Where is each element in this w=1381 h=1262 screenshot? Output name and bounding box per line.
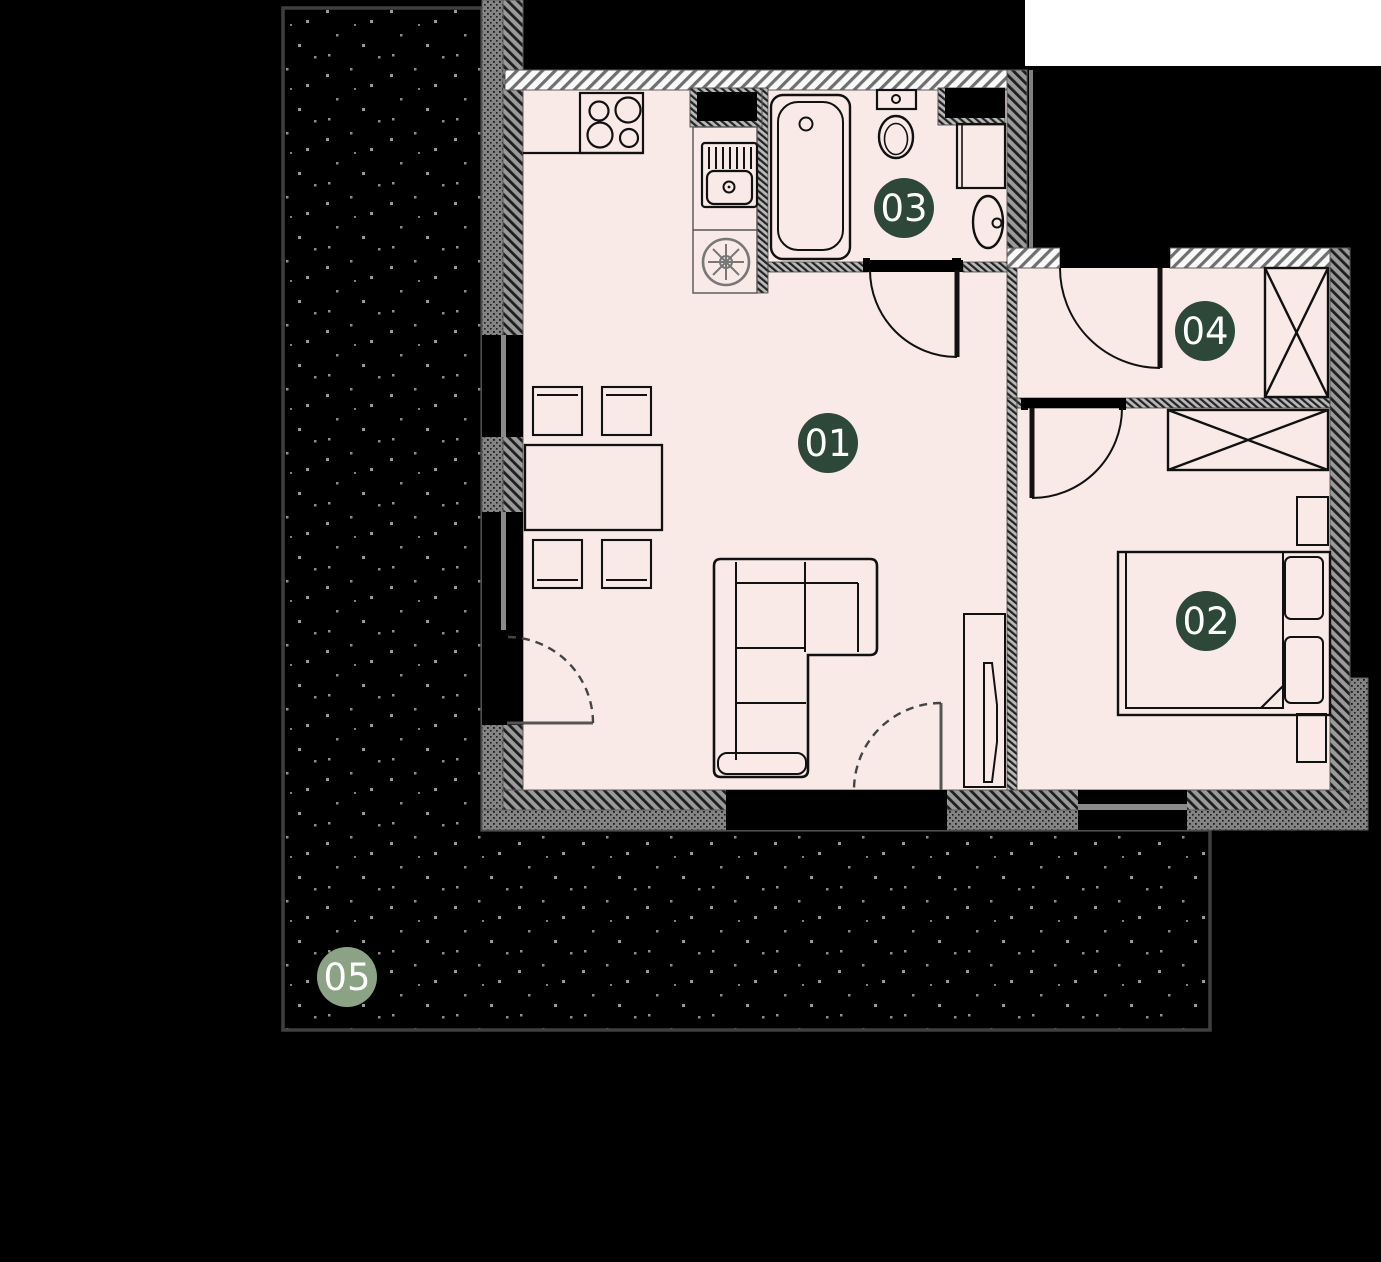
room-badge-label: 02 — [1182, 600, 1229, 643]
room-badge-label: 05 — [323, 956, 370, 999]
floor-plan-canvas: 01 02 03 04 05 — [0, 0, 1381, 1262]
floor-plan-drawing: 01 02 03 04 05 — [0, 0, 1381, 1262]
vent-shaft-kitchen — [690, 88, 762, 127]
room-badge-05[interactable]: 05 — [317, 947, 377, 1007]
bedroom-window-frame — [1078, 804, 1187, 810]
window-frame-left-1 — [501, 335, 506, 437]
room-badge-04[interactable]: 04 — [1175, 301, 1235, 361]
room-badge-label: 03 — [880, 187, 927, 230]
room-badge-02[interactable]: 02 — [1176, 591, 1236, 651]
white-corner — [1025, 0, 1381, 66]
room-badge-label: 04 — [1181, 310, 1228, 353]
balcony-door-opening — [482, 630, 523, 725]
room-badge-03[interactable]: 03 — [874, 178, 934, 238]
window-frame-left-2 — [501, 512, 506, 630]
vent-shaft-bathroom — [938, 88, 1005, 125]
room-badge-label: 01 — [804, 422, 851, 465]
terrace-door-opening — [726, 790, 947, 830]
room-badge-01[interactable]: 01 — [798, 413, 858, 473]
